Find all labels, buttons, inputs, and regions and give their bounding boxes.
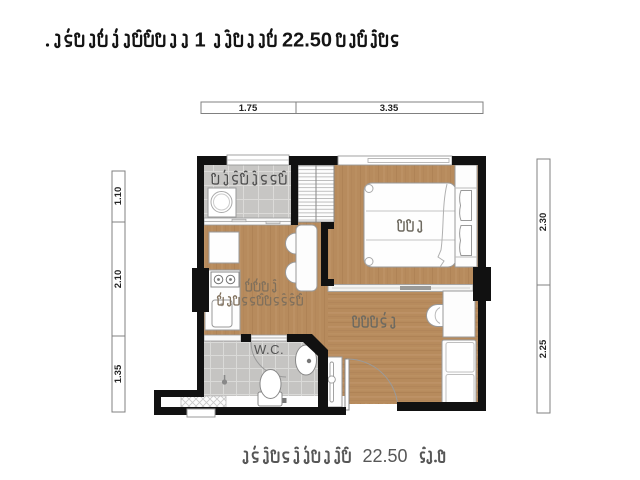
svg-text:1.10: 1.10 <box>113 187 124 206</box>
svg-text:2.10: 2.10 <box>113 270 124 289</box>
svg-text:3.35: 3.35 <box>380 103 399 114</box>
svg-text:22.50: 22.50 <box>362 446 407 466</box>
svg-text:1.75: 1.75 <box>239 103 258 114</box>
svg-text:W.C.: W.C. <box>254 342 284 357</box>
svg-text:1.35: 1.35 <box>113 364 124 383</box>
svg-text:2.25: 2.25 <box>538 339 549 358</box>
svg-text:1: 1 <box>194 30 205 52</box>
svg-text:22.50: 22.50 <box>282 30 332 52</box>
svg-text:2.30: 2.30 <box>538 213 549 232</box>
